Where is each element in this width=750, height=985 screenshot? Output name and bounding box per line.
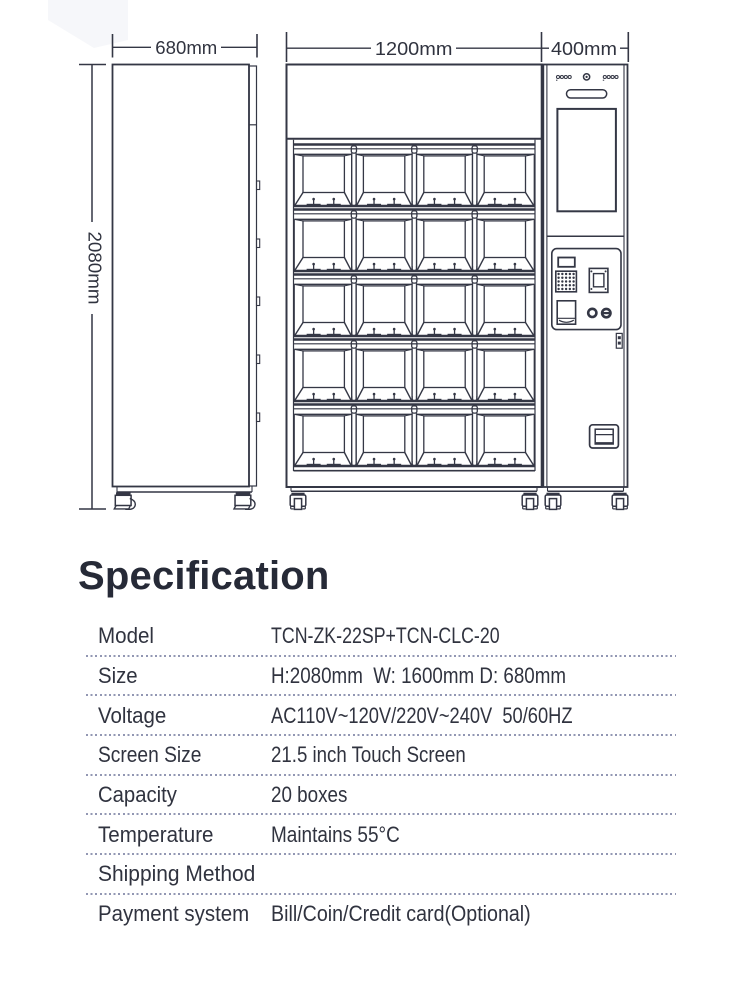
svg-text:400mm: 400mm (551, 39, 617, 59)
svg-text:680mm: 680mm (155, 38, 217, 58)
svg-text:1200mm: 1200mm (375, 39, 453, 59)
svg-text:2080mm: 2080mm (85, 232, 105, 305)
